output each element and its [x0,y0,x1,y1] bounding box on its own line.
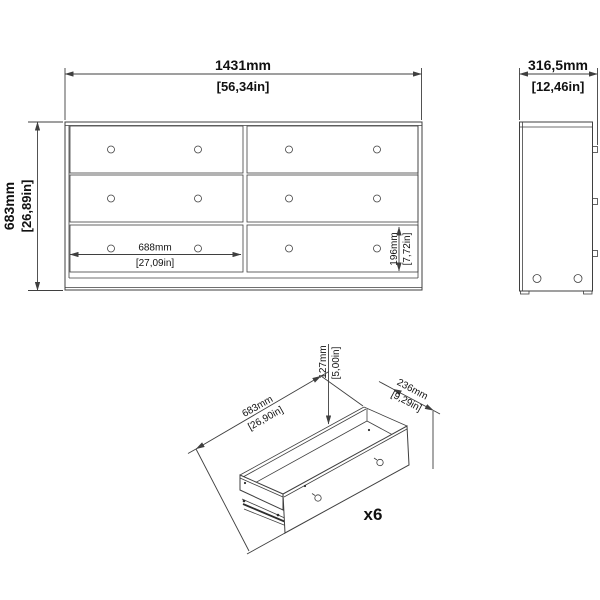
overall-height-mm-label: 683mm [1,182,17,230]
dim-drawer-height: 196mm [7,72in] [389,227,413,271]
knob-icon [374,195,381,202]
knob-icon [374,245,381,252]
front-view: 1431mm [56,34in] 683mm [26,89in] 688mm [… [1,57,422,291]
dim-overall-width: 1431mm [56,34in] [65,57,422,120]
knob-profile-icon [593,251,598,257]
drawer-detail-view: 127mm [5,00in] 683mm [26,90in] 236mm [9,… [188,344,440,554]
drawer-front-r1c1 [70,126,243,173]
dim-drawer-width: 688mm [27,09in] [70,243,241,270]
drawer-front-panel [283,426,409,533]
knob-icon [286,195,293,202]
dim-overall-depth: 316,5mm [12,46in] [520,57,598,145]
side-outline [520,122,593,291]
cabinet-outline [65,122,422,290]
dim-overall-height: 683mm [26,89in] [1,122,63,291]
drawer-height-in-label: [7,72in] [402,232,413,265]
drawer-detail-height-in-label: [5,00in] [331,346,342,379]
knob-icon [195,245,202,252]
knob-profile-icon [593,199,598,205]
drawer-detail-height-mm-label: 127mm [318,345,329,378]
screw-dot [368,429,370,431]
diagram-svg: 1431mm [56,34in] 683mm [26,89in] 688mm [… [0,0,600,600]
knob-icon [108,146,115,153]
knob-icon [195,195,202,202]
dim-drawer-detail-width: 683mm [26,90in] [188,372,363,555]
overall-depth-mm-label: 316,5mm [528,57,588,73]
dresser-dimension-diagram: 1431mm [56,34in] 683mm [26,89in] 688mm [… [0,0,600,600]
screw-dot [304,485,306,487]
side-view: 316,5mm [12,46in] [520,57,598,294]
knob-icon [195,146,202,153]
overall-height-in-label: [26,89in] [19,180,34,233]
drawer-width-in-label: [27,09in] [136,258,175,269]
knob-icon [374,146,381,153]
overall-width-in-label: [56,34in] [217,79,270,94]
knob-icon [286,146,293,153]
drawer-height-mm-label: 196mm [389,232,400,265]
knob-icon [286,245,293,252]
drawer-knobs [108,146,381,252]
overall-width-mm-label: 1431mm [215,57,271,73]
knob-icon [108,195,115,202]
knob-profile-icon [593,147,598,153]
side-hole-icon [574,275,582,283]
drawer-front-r1c2 [247,126,418,173]
drawer-width-mm-label: 688mm [138,243,171,254]
drawer-front-r2c2 [247,175,418,222]
drawer-front-r2c1 [70,175,243,222]
screw-dot [244,482,246,484]
dim-drawer-detail-height: 127mm [5,00in] [318,344,342,424]
quantity-label: x6 [364,505,383,524]
overall-depth-in-label: [12,46in] [532,79,585,94]
knob-icon [108,245,115,252]
side-hole-icon [533,275,541,283]
